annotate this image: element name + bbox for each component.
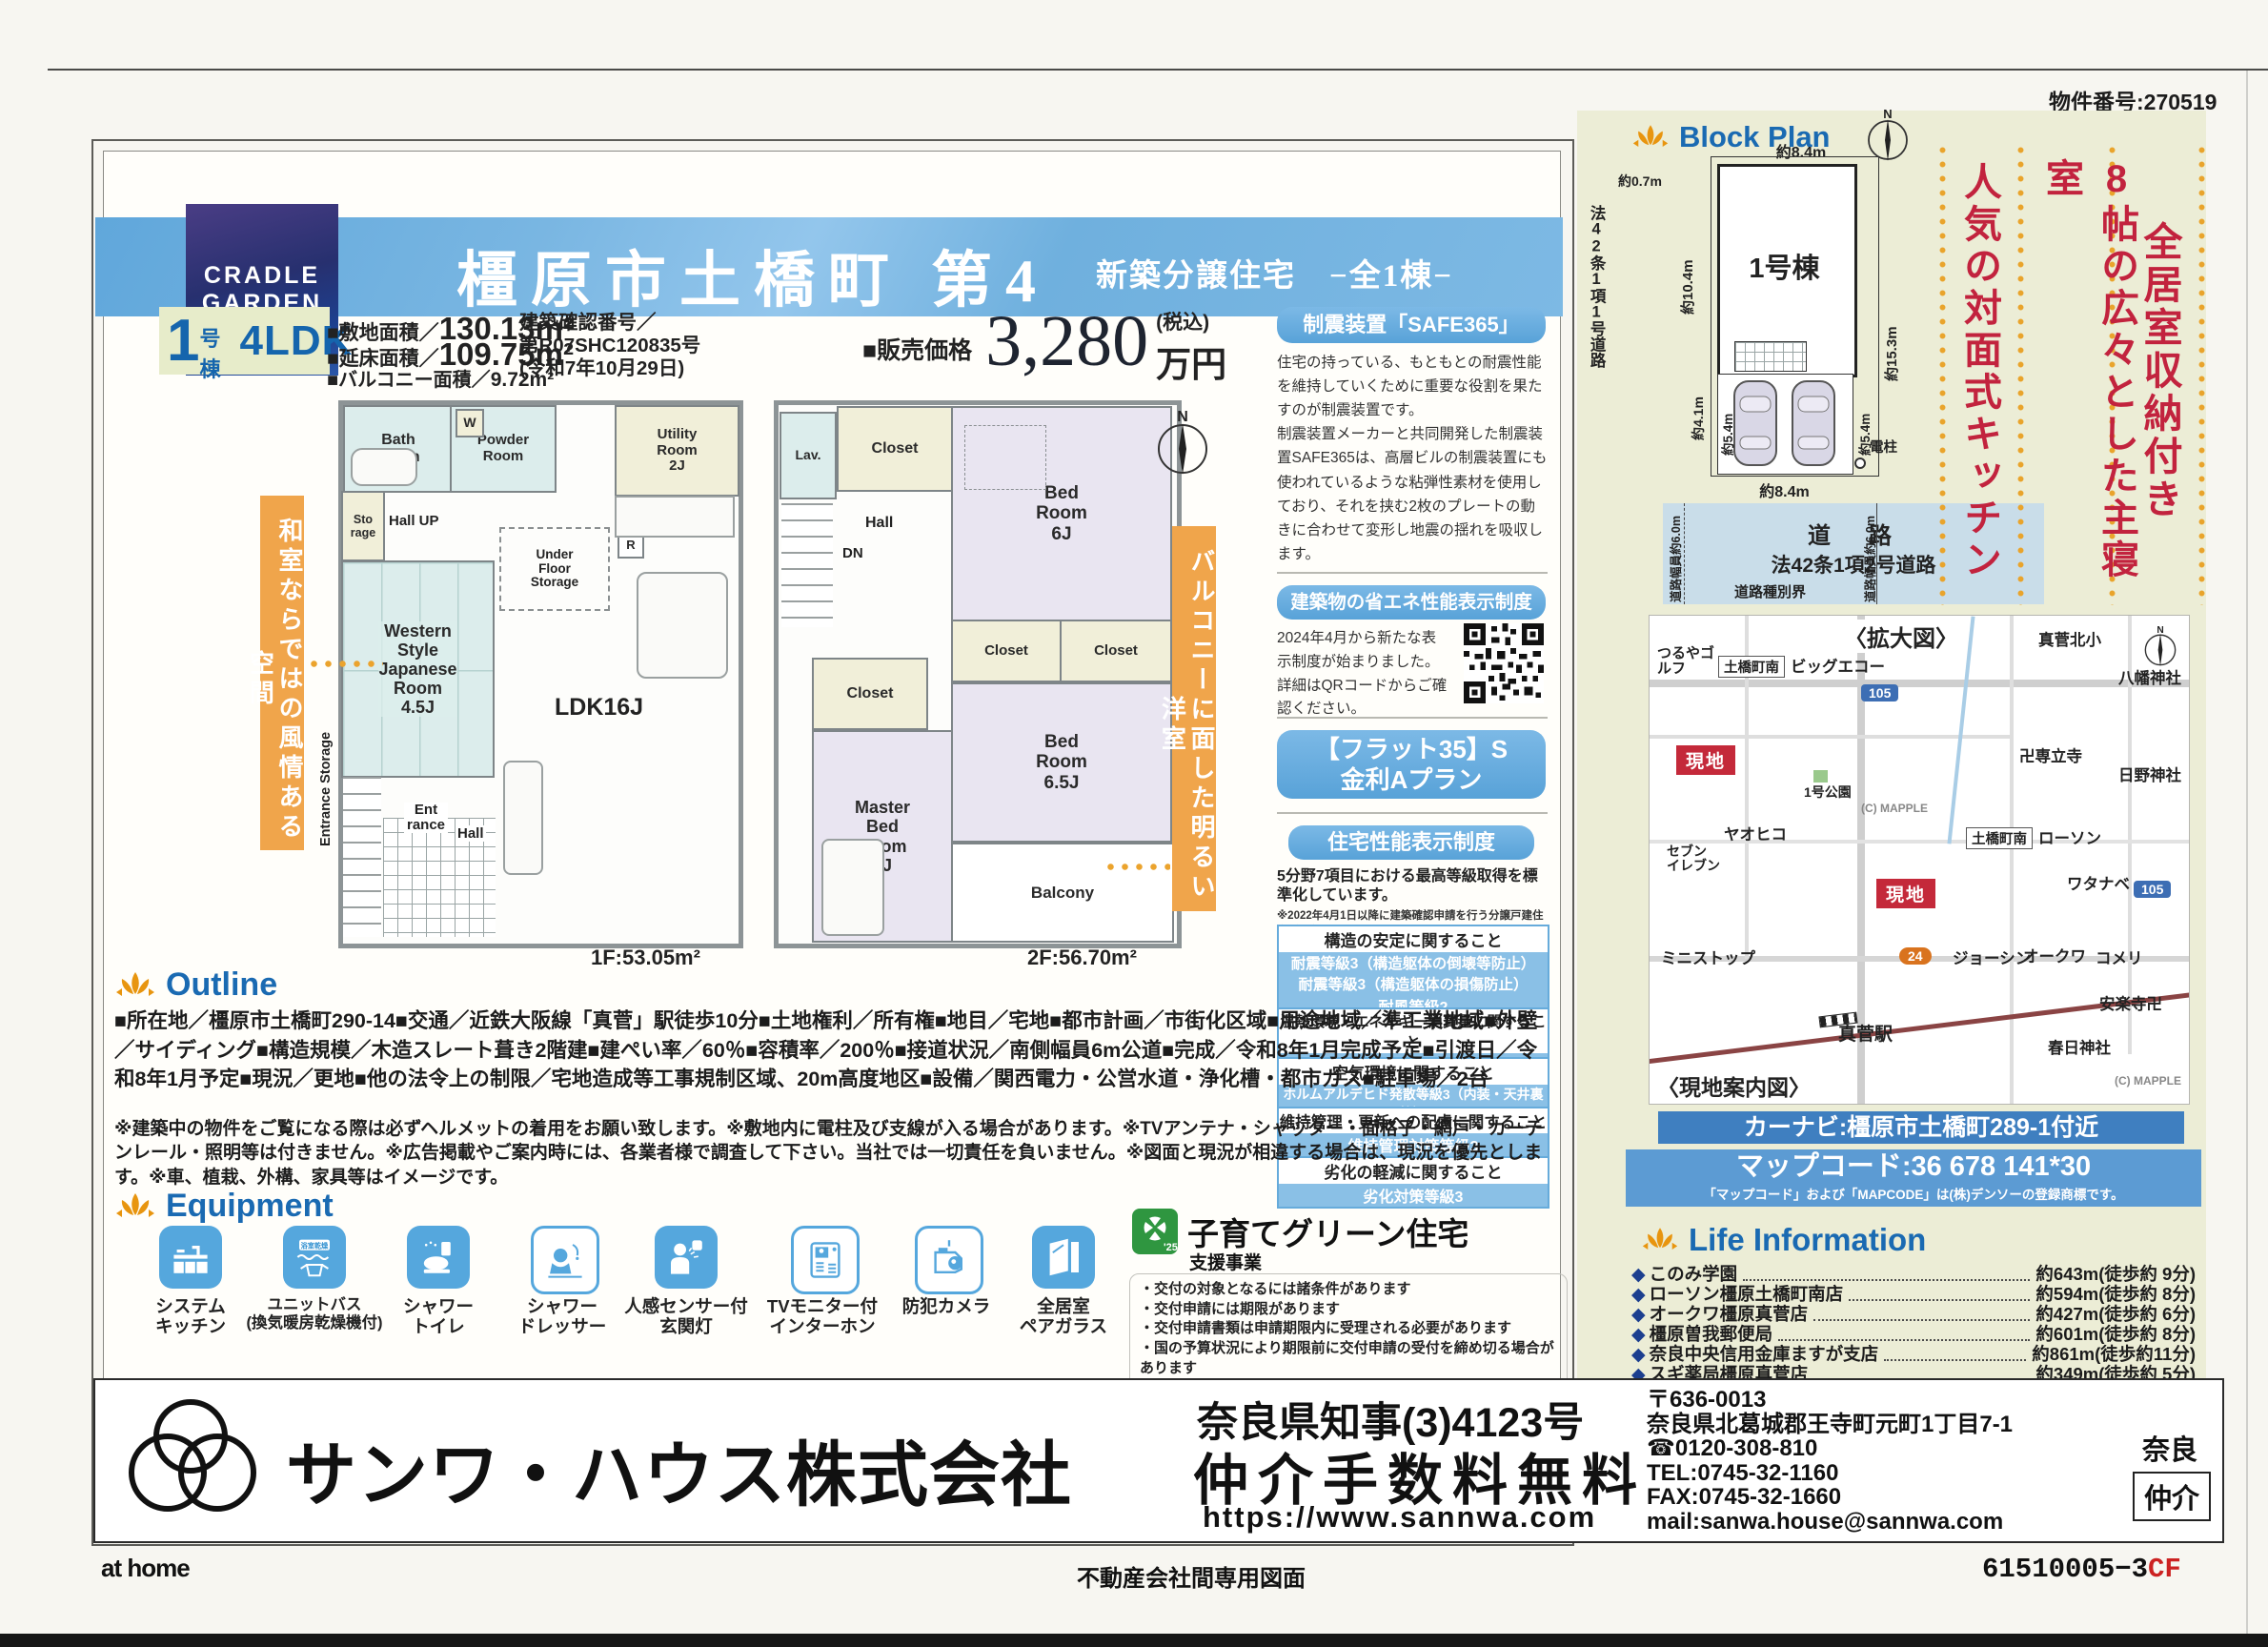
kosodate-subtitle: 支援事業 <box>1189 1249 1262 1274</box>
company-url: https://www.sannwa.com <box>1203 1500 1596 1535</box>
room-bed65: Bed Room 6.5J <box>951 682 1172 843</box>
dotted-rule-3 <box>2016 143 2025 605</box>
pair-glass-icon <box>1032 1226 1095 1289</box>
map-label-masuga-kita-elem: 真菅北小 <box>2038 633 2101 649</box>
paper-top-edge <box>48 69 2268 71</box>
performance-box-1: 構造の安定に関すること 耐震等級3（構造躯体の倒壊等防止） 耐震等級3（構造躯体… <box>1277 925 1549 1019</box>
map-label-joshin: ジョーシン <box>1953 951 2031 967</box>
sensor-light-icon <box>655 1226 718 1289</box>
outline-notes: ※建築中の物件をご覧になる際は必ずヘルメットの着用をお願い致します。※敷地内に電… <box>114 1117 1551 1189</box>
bath-dry-tag: 浴室乾燥 <box>301 1241 330 1250</box>
code-suffix: CF <box>2148 1554 2181 1585</box>
floor2-area-label: 2F:56.70m² <box>1027 945 1137 970</box>
bp-building-label: 1号棟 <box>1717 246 1852 286</box>
map-label-yaohiko: ヤオヒコ <box>1724 827 1787 844</box>
flat35-pill: 【フラット35】S 金利Aプラン <box>1277 730 1546 799</box>
room-closet-left: Closet <box>812 658 928 730</box>
label-entrance-storage: Entrance Storage <box>318 656 334 846</box>
qr-code <box>1464 623 1544 708</box>
map-label-tsuruya: つるやゴルフ <box>1657 646 1724 677</box>
price-tax: (税込) <box>1156 307 1226 335</box>
confirmation-1: 建築確認番号／ <box>519 312 700 335</box>
map-label-station: 真菅駅 <box>1838 1026 1893 1045</box>
pref-label: 奈良 <box>2142 1428 2197 1468</box>
area3-label: ■バルコニー面積／ <box>327 370 491 391</box>
route-105-badge: 105 <box>1861 684 1898 701</box>
equipment-label-5: 人感センサー付 玄関灯 <box>621 1296 751 1337</box>
map-label-ministop: ミニストップ <box>1661 951 1755 967</box>
svg-text:N: N <box>1883 107 1892 121</box>
mapcode-value: マップコード:36 678 141*30 <box>1626 1149 2201 1184</box>
room-closet-mid2: Closet <box>1060 620 1172 682</box>
divider-3 <box>1277 812 1548 814</box>
area-map: 〈拡大図〉 N つるやゴルフ 土橋町南 ビッグエコー 105 真菅北小 八幡神社… <box>1649 615 2190 1105</box>
shower-dresser-icon <box>531 1226 599 1294</box>
energy-title: 建築物の省エネ性能表示制度 <box>1277 585 1546 620</box>
unit-label: 号棟 <box>199 322 220 383</box>
kosodate-badge: '25 <box>1132 1209 1178 1254</box>
tv-interphone-icon <box>791 1226 860 1294</box>
map-label-dobashicho-minami: 土橋町南 <box>1718 656 1785 678</box>
desk-dashed <box>964 425 1046 490</box>
sofa <box>503 761 543 875</box>
car-1 <box>1731 379 1779 472</box>
dotted-connector-right <box>1104 863 1170 871</box>
map-label-watanabe: ワタナベ <box>2067 877 2130 893</box>
room-utility: Utility Room 2J <box>615 405 739 497</box>
label-hall-up: Hall UP <box>389 513 439 529</box>
room-balcony: Balcony <box>951 843 1174 943</box>
dotted-rule-4 <box>1938 143 1947 605</box>
washer-box: W <box>456 409 484 437</box>
paper-bottom-bar <box>0 1634 2268 1647</box>
equipment-label-8: 全居室 ペアガラス <box>999 1296 1128 1337</box>
car-2 <box>1790 379 1837 472</box>
map-credit-1: (C) MAPPLE <box>1861 803 1928 815</box>
equipment-label-4: シャワー ドレッサー <box>497 1296 627 1337</box>
bp-dim-right: 約15.3m <box>1881 276 1901 381</box>
map-road <box>2010 616 2014 1104</box>
compass-map: N <box>2143 623 2177 674</box>
flat35-line2: 金利Aプラン <box>1341 764 1483 796</box>
equipment-label-1: システム キッチン <box>126 1296 255 1337</box>
equipment-label-7: 防犯カメラ <box>881 1296 1011 1316</box>
equipment-label-3: シャワー トイレ <box>374 1296 503 1337</box>
performance-intro1: 5分野7項目における最高等級取得を標準化しています。 <box>1277 867 1548 905</box>
route-105-badge-2: 105 <box>2134 881 2171 898</box>
unit-slash <box>219 314 241 369</box>
mapcode-banner: マップコード:36 678 141*30 「マップコード」および「MAPCODE… <box>1626 1149 2201 1207</box>
label-entrance: Ent rance <box>404 803 448 833</box>
headline-bedroom: 8帖の広々とした主寝室 <box>2034 158 2144 606</box>
divider-1 <box>1277 572 1548 574</box>
map-credit-2: (C) MAPPLE <box>2115 1075 2181 1088</box>
unit-number: 1 <box>167 312 199 371</box>
map-label-dobashicho-minami-2: 土橋町南 <box>1966 827 2033 849</box>
security-camera-icon <box>915 1226 983 1294</box>
bp-dim-offset: 約0.7m <box>1618 172 1662 191</box>
page-subtitle: 新築分譲住宅 −全1棟− <box>1096 250 1553 295</box>
flat35-line1: 【フラット35】S <box>1315 734 1508 765</box>
bp-road-width-right: 道路幅員約6.0m <box>1860 503 1878 602</box>
bp-porch <box>1734 341 1807 372</box>
park-marker <box>1813 770 1828 783</box>
lotus-icon <box>114 1192 156 1221</box>
bp-dim-parking-left: 約5.4m <box>1717 381 1736 456</box>
bp-dim-bottom: 約8.4m <box>1717 478 1852 501</box>
floor1-area-label: 1F:53.05m² <box>591 945 700 970</box>
map-label-hino-shrine: 日野神社 <box>2118 768 2181 784</box>
life-heading: Life Information <box>1641 1222 1926 1258</box>
unit-bath-icon: 浴室乾燥 <box>283 1226 346 1289</box>
company-name: サンワ・ハウス株式会社 <box>286 1418 1072 1520</box>
divider-2 <box>1277 717 1548 719</box>
equipment-label-6: TVモニター付 インターホン <box>758 1296 887 1337</box>
dedicated-label: 不動産会社間専用図面 <box>1077 1559 1306 1593</box>
life-list: ◆このみ学園約643m(徒歩約 9分) ◆ローソン橿原土橋町南店約594m(徒歩… <box>1631 1266 2196 1386</box>
confirmation-2: 第R07SHC120835号 <box>519 335 700 357</box>
site-marker-1: 現地 <box>1676 745 1735 775</box>
bed <box>821 839 884 936</box>
flyer-page: 物件番号:270519 CRADLE GARDEN 橿原市土橋町 第4 新築分譲… <box>0 0 2268 1647</box>
kosodate-year: '25 <box>1164 1242 1178 1253</box>
map-label-seven: セブン イレブン <box>1667 844 1720 872</box>
lotus-icon <box>114 971 156 1000</box>
bp-dim-left: 約10.4m <box>1677 224 1697 315</box>
map-guide-label: 〈現地案内図〉 <box>1653 1069 1814 1102</box>
shower-toilet-icon <box>407 1226 470 1289</box>
map-label-senryuji: 卍専立寺 <box>2019 749 2082 765</box>
map-label-kasuga: 春日神社 <box>2048 1041 2111 1057</box>
performance-title: 住宅性能表示制度 <box>1288 825 1534 860</box>
bp-road-left-label: 法42条1項1号道路 <box>1588 205 1605 472</box>
price-label: ■販売価格 <box>862 332 972 366</box>
map-label-okuwa: オークワ <box>2023 949 2086 966</box>
unit-plan-box: 1 号棟 4LDK <box>159 307 330 375</box>
headline-kitchen: 人気の対面式キッチン <box>1952 162 2007 591</box>
label-dn: DN <box>842 545 863 561</box>
paper-right-edge <box>2246 71 2248 1634</box>
dotted-connector-left <box>307 660 383 668</box>
room-closet-mid1: Closet <box>951 620 1062 682</box>
bathtub <box>351 448 417 486</box>
system-kitchen-icon <box>159 1226 222 1289</box>
price-value: 3,280 <box>985 307 1148 376</box>
banner-balcony-room: バルコニーに面した明るい洋室 <box>1172 526 1216 911</box>
map-road <box>1650 680 2189 687</box>
bp-pole-dot <box>1854 457 1866 469</box>
mapcode-note: 「マップコード」および「MAPCODE」は(株)デンソーの登録商標です。 <box>1626 1184 2201 1203</box>
stairs-1f <box>343 777 381 937</box>
carnav-banner: カーナビ:橿原市土橋町289-1付近 <box>1658 1111 2184 1144</box>
confirmation-3: (令和7年10月29日) <box>519 357 700 380</box>
room-storage-1f: Sto rage <box>341 491 385 561</box>
document-code: 61510005−3CF <box>1982 1554 2181 1585</box>
safe365-body: 住宅の持っている、もともとの耐震性能を維持していくために重要な役割を果たすのが制… <box>1277 351 1548 566</box>
map-label-hachiman: 八幡神社 <box>2118 671 2181 687</box>
map-label-park: 1号公園 <box>1804 785 1852 800</box>
map-label-anrakuji: 安楽寺卍 <box>2099 997 2162 1013</box>
map-label-bigecho: ビッグエコー <box>1791 660 1885 676</box>
bp-dim-left2: 約4.1m <box>1689 381 1708 440</box>
brand-line1: CRADLE <box>204 262 320 290</box>
under-floor-storage: Under Floor Storage <box>499 527 610 611</box>
price-unit: 万円 <box>1156 335 1226 387</box>
kitchen-counter <box>615 496 735 538</box>
athome-logo: at home <box>101 1554 190 1583</box>
outline-heading: Outline <box>114 966 277 1004</box>
label-ldk: LDK16J <box>555 694 643 722</box>
outline-body: ■所在地／橿原市土橋町290-14■交通／近鉄大阪線「真菅」駅徒歩10分■土地権… <box>114 1006 1551 1094</box>
confirmation-block: 建築確認番号／ 第R07SHC120835号 (令和7年10月29日) <box>519 312 700 381</box>
banner-japanese-room: 和室ならではの風情ある空間 <box>260 496 304 850</box>
compass-n-label: N <box>1177 409 1188 425</box>
compass-floorplan: N <box>1155 408 1210 481</box>
room-japanese: Western Style Japanese Room 4.5J <box>341 560 495 778</box>
kosodate-title: 子育てグリーン住宅 <box>1187 1209 1468 1254</box>
agency-badge: 仲介 <box>2133 1472 2211 1521</box>
lotus-icon <box>1631 124 1670 151</box>
dotted-rule-1 <box>2197 143 2206 605</box>
dining-table <box>637 572 728 679</box>
safe365-title: 制震装置「SAFE365」 <box>1277 307 1546 343</box>
label-hall-2f: Hall <box>865 515 893 532</box>
map-label-komeri: コメリ <box>2096 951 2143 967</box>
lotus-icon <box>1641 1227 1679 1253</box>
room-lav: Lav. <box>780 412 837 499</box>
stairs-2f <box>781 503 833 627</box>
price-block: ■販売価格 3,280 (税込) 万円 <box>862 307 1226 387</box>
energy-body: 2024年4月から新たな表示制度が始まりました。詳細はQRコードからご確認くださ… <box>1277 627 1448 722</box>
map-label-lawson: ローソン <box>2038 831 2101 847</box>
bp-boundary-label: 道路種別界 <box>1734 581 1806 601</box>
company-address: 〒636-0013 奈良県北葛城郡王寺町元町1丁目7-1 ☎0120-308-8… <box>1647 1388 2095 1534</box>
bp-road-width-left: 道路幅員約6.0m <box>1666 503 1684 602</box>
bp-pole-label: 電柱 <box>1870 437 1897 457</box>
equipment-heading: Equipment <box>114 1188 334 1225</box>
route-24-badge: 24 <box>1899 947 1932 965</box>
label-hall-1f: Hall <box>456 825 486 842</box>
company-logo <box>129 1399 291 1518</box>
site-marker-2: 現地 <box>1876 879 1935 908</box>
equipment-label-2: ユニットバス (換気暖房乾燥機付) <box>243 1296 386 1332</box>
map-road <box>1650 735 2012 739</box>
room-closet-top: Closet <box>837 406 953 492</box>
map-enlarged-label: 〈拡大図〉 <box>1840 620 1962 653</box>
